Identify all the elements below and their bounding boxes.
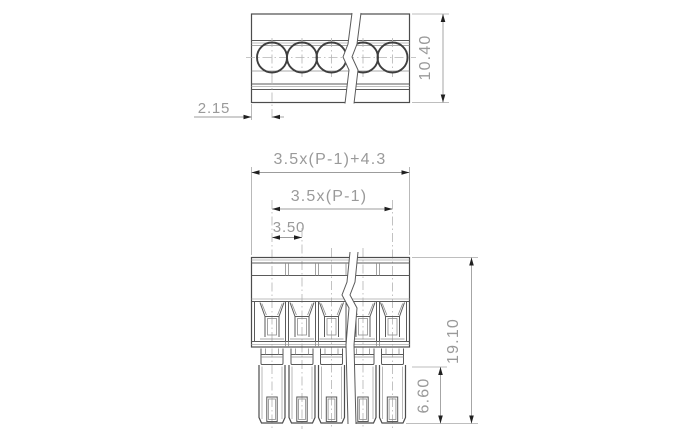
- terminal-block-drawing: 10.40 2.15 3.5x(P-1)+4.3 3.5x(P-1) 3.50: [0, 0, 680, 440]
- dim-pole-span: 3.5x(P-1): [272, 188, 393, 211]
- latch-slot-dividers: [286, 263, 380, 276]
- top-view-housing-lines: [252, 41, 410, 90]
- dim-label-pitch: 3.50: [273, 219, 305, 236]
- dim-6-60: 6.60: [412, 367, 447, 424]
- drawing-canvas: 10.40 2.15 3.5x(P-1)+4.3 3.5x(P-1) 3.50: [0, 0, 680, 440]
- dim-label-overall-height: 19.10: [445, 318, 462, 364]
- dim-2-15: 2.15: [194, 76, 284, 120]
- front-view: [252, 252, 410, 424]
- dim-label-pole-span: 3.5x(P-1): [291, 188, 368, 205]
- dim-10-40: 10.40: [412, 14, 449, 103]
- dim-label-overall-width: 3.5x(P-1)+4.3: [274, 151, 387, 168]
- dim-label-pin-length: 6.60: [416, 378, 433, 414]
- dim-label-screw-offset: 2.15: [198, 100, 230, 117]
- top-view: [246, 13, 416, 104]
- dim-pitch: 3.50: [272, 219, 305, 240]
- dim-label-top-depth: 10.40: [417, 34, 434, 80]
